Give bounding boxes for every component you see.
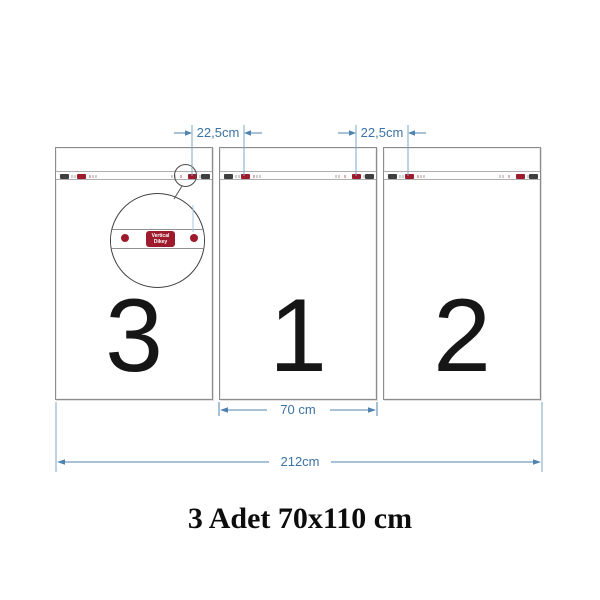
arrowhead-icon: [57, 459, 65, 465]
rail-clip-icon: [388, 174, 397, 179]
rail-tick-icon: [74, 175, 76, 178]
rail-tick-icon: [344, 175, 346, 178]
rail-tick-icon: [238, 175, 240, 178]
rail-tick-icon: [399, 175, 401, 178]
rail-tick-icon: [71, 175, 73, 178]
orientation-tag: Vertical Dikey: [146, 231, 175, 247]
dimension-label-panel-width: 70 cm: [266, 402, 330, 417]
hanger-dot-icon: [190, 234, 198, 242]
rail-clip-icon: [201, 174, 210, 179]
magnifier-source-circle: [174, 164, 197, 187]
panel-number: 2: [384, 284, 540, 388]
rail-hanger-icon: [352, 174, 361, 179]
rail-tick-icon: [259, 175, 261, 178]
rail-hanger-icon: [405, 174, 414, 179]
rail-clip-icon: [60, 174, 69, 179]
rail-tick-icon: [171, 175, 173, 178]
rail-clip-icon: [365, 174, 374, 179]
diagram-title: 3 Adet 70x110 cm: [0, 502, 600, 536]
rail-tick-icon: [499, 175, 501, 178]
panel-number: 3: [56, 284, 212, 388]
panel: 1: [219, 147, 377, 400]
rail-hanger-icon: [516, 174, 525, 179]
rail-tick-icon: [417, 175, 419, 178]
rail-tick-icon: [253, 175, 255, 178]
orientation-tag-line2: Dikey: [146, 239, 175, 245]
arrowhead-icon: [220, 407, 228, 413]
rail-tick-icon: [508, 175, 510, 178]
rail-tick-icon: [502, 175, 504, 178]
dimension-label-total-width: 212cm: [268, 454, 332, 469]
rail-clip-icon: [529, 174, 538, 179]
arrowhead-icon: [368, 407, 376, 413]
rail-tick-icon: [95, 175, 97, 178]
rail-tick-icon: [420, 175, 422, 178]
rail-tick-icon: [256, 175, 258, 178]
panel-number: 1: [220, 284, 376, 388]
rail-tick-icon: [338, 175, 340, 178]
panel: 2: [383, 147, 541, 400]
arrowhead-icon: [533, 459, 541, 465]
hanging-rail: [220, 171, 376, 180]
rail-hanger-icon: [77, 174, 86, 179]
rail-tick-icon: [235, 175, 237, 178]
diagram-canvas: 3 1: [0, 0, 600, 600]
rail-tick-icon: [335, 175, 337, 178]
rail-tick-icon: [402, 175, 404, 178]
rail-tick-icon: [423, 175, 425, 178]
hanger-dot-icon: [121, 234, 129, 242]
magnifier-detail-circle: Vertical Dikey: [110, 193, 205, 288]
rail-tick-icon: [89, 175, 91, 178]
rail-tick-icon: [92, 175, 94, 178]
rail-hanger-icon: [241, 174, 250, 179]
hanging-rail: [384, 171, 540, 180]
rail-clip-icon: [224, 174, 233, 179]
dimension-label-gap-right: 22,5cm: [354, 125, 410, 140]
dimension-label-gap-left: 22,5cm: [190, 125, 246, 140]
